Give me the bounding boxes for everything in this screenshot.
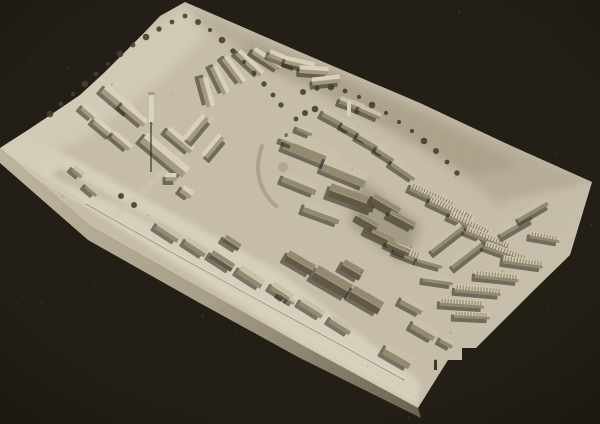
town-model-photo [0,0,600,424]
photograph-frame [0,0,600,424]
vignette-layer [0,0,600,424]
